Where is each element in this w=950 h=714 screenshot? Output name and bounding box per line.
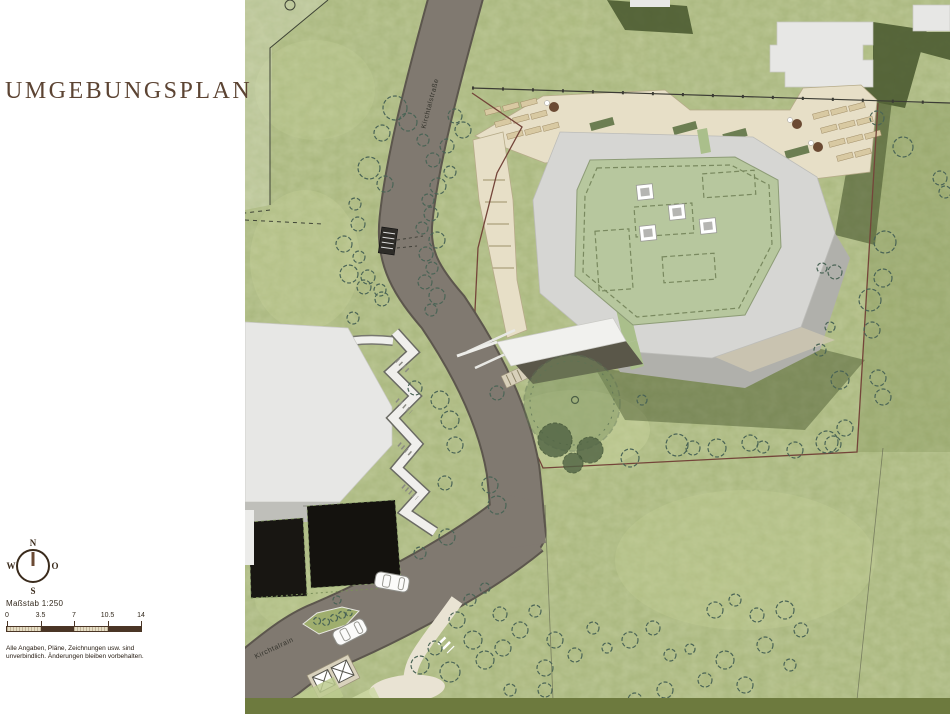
compass-north: N [30, 538, 37, 548]
site-plan-map: KirchtalstraßeKirchtalrain [245, 0, 950, 714]
skylight [636, 184, 653, 201]
scale-tick-mark [41, 621, 42, 626]
neighbour-building-north [770, 22, 873, 87]
scale-tick-label: 14 [137, 612, 145, 619]
scale-tick-label: 10.5 [101, 612, 115, 619]
scale-tick-label: 3.5 [36, 612, 46, 619]
skylight [668, 204, 685, 221]
scale-label: Maßstab 1:250 [6, 599, 63, 608]
compass-east: O [51, 561, 58, 571]
info-panel: UMGEBUNGSPLAN N O S W Maßstab 1:250 03.5… [0, 0, 245, 714]
disclaimer-text: Alle Angaben, Pläne, Zeichnungen usw. si… [6, 645, 144, 661]
compass-west: W [7, 561, 16, 571]
scale-tick-mark [141, 621, 142, 626]
scale-tick-label: 0 [5, 612, 9, 619]
scale-tick-mark [74, 621, 75, 626]
scale-bar: 03.5710.514 [6, 612, 142, 632]
scale-segment [7, 627, 41, 631]
neighbour-building-east [913, 5, 950, 31]
street-stairs [378, 227, 397, 255]
scale-tick-mark [7, 621, 8, 626]
scale-tick-label: 7 [72, 612, 76, 619]
scale-tick-mark [108, 621, 109, 626]
skylight [699, 218, 716, 235]
scale-segment [108, 627, 142, 631]
page-title: UMGEBUNGSPLAN [5, 78, 243, 105]
site-plan-page: KirchtalstraßeKirchtalrain UMGEBUNGSPLAN… [0, 0, 950, 714]
map-bottom-band [245, 698, 950, 714]
scale-segment [41, 627, 75, 631]
dark-roof-1 [249, 518, 307, 598]
scale-segment [74, 627, 108, 631]
compass-icon: N O S W [4, 532, 68, 598]
green-roof [575, 157, 781, 325]
compass-south: S [30, 586, 35, 596]
skylight [639, 225, 656, 242]
